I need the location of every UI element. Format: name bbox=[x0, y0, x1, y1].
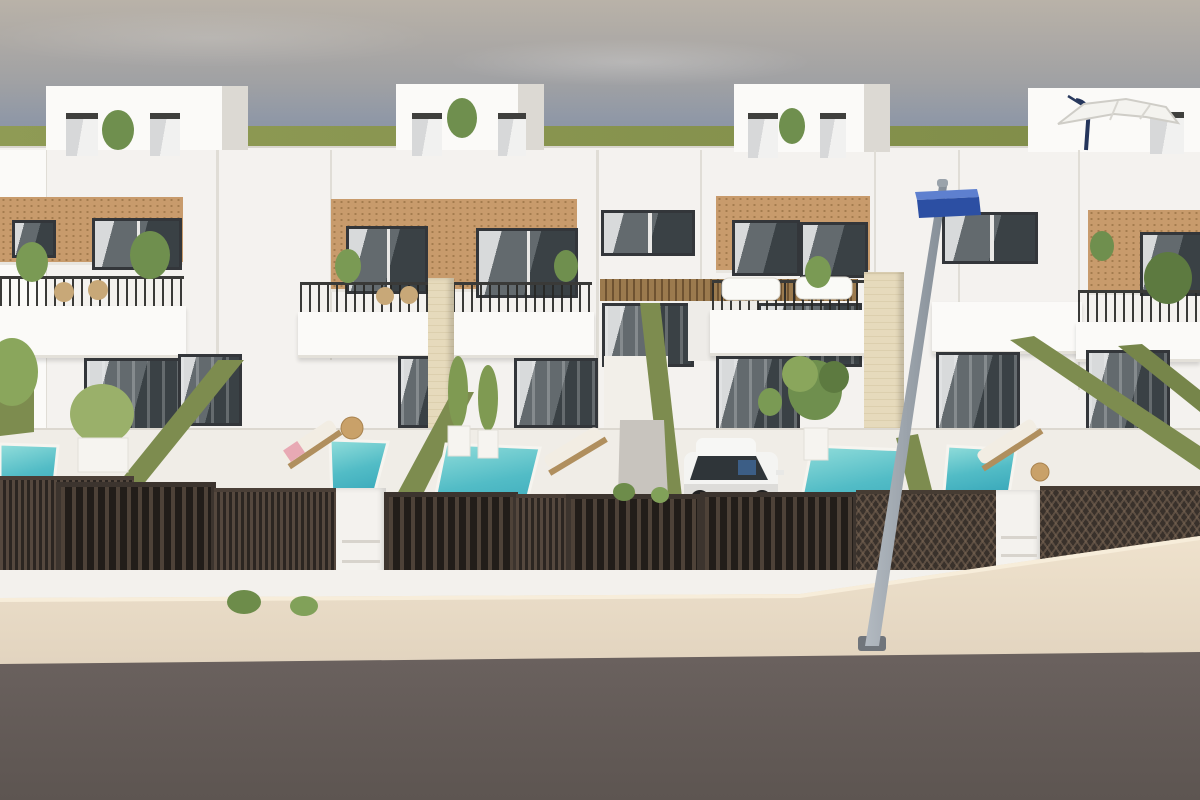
architectural-render-scene: 3D architectural rendering, street view … bbox=[0, 0, 1200, 800]
blue-street-sign bbox=[917, 197, 981, 218]
street-overlay bbox=[0, 0, 1200, 800]
lamppost-cap bbox=[937, 179, 948, 187]
shrub bbox=[651, 487, 669, 503]
shrub bbox=[613, 483, 635, 501]
roof-parasol bbox=[1058, 96, 1178, 150]
shrub bbox=[290, 596, 318, 616]
shrub bbox=[227, 590, 261, 614]
